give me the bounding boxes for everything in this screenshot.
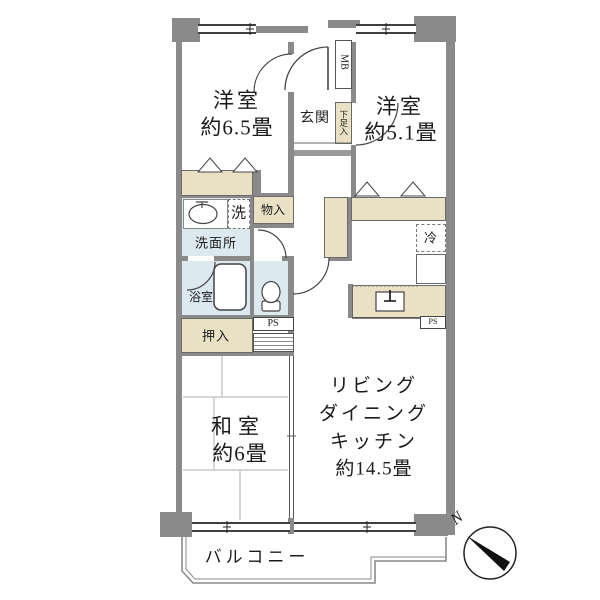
wall bbox=[252, 26, 308, 33]
floor-plan: 洋室 約6.5畳 洋室 約5.1畳 玄関 下足入 MB 洗 洗面所 物入 浴室 … bbox=[0, 0, 600, 600]
wall bbox=[288, 92, 294, 196]
closet-bedroom2-side bbox=[324, 197, 348, 258]
refrigerator-label: 冷 bbox=[424, 232, 438, 245]
bedroom1-name: 洋室 bbox=[213, 91, 261, 112]
entrance-step bbox=[294, 150, 351, 156]
oshiire-label: 押入 bbox=[202, 330, 230, 343]
living-door-arc bbox=[293, 258, 329, 294]
corridor-door-arc bbox=[258, 230, 286, 258]
ldk-line1: リビング bbox=[330, 377, 418, 396]
closet-bedroom2 bbox=[351, 197, 446, 221]
ldk-line3: キッチン bbox=[330, 433, 418, 452]
compass-needle bbox=[467, 536, 510, 571]
wall bbox=[446, 18, 455, 535]
japanese-room-name: 和室 bbox=[211, 417, 265, 438]
wall bbox=[214, 256, 254, 261]
sliding-door bbox=[287, 356, 296, 518]
toilet-floor bbox=[254, 261, 288, 316]
wall bbox=[288, 42, 294, 54]
wall bbox=[176, 40, 182, 518]
wall bbox=[176, 256, 188, 261]
pipe-space-label: PS bbox=[267, 319, 278, 329]
bedroom2-name: 洋室 bbox=[376, 97, 424, 118]
pipe-space-hatch bbox=[253, 333, 294, 352]
window-balcony-door bbox=[294, 522, 416, 532]
kitchen-counter bbox=[352, 285, 446, 318]
bath-label: 浴室 bbox=[189, 291, 213, 303]
counter-unit bbox=[416, 254, 446, 284]
window bbox=[198, 24, 256, 34]
wall bbox=[253, 170, 261, 196]
ldk-size: 約14.5畳 bbox=[335, 460, 412, 479]
bedroom2-size: 約5.1畳 bbox=[364, 123, 437, 144]
bedroom1-size: 約6.5畳 bbox=[200, 118, 273, 139]
wall-pillar bbox=[172, 18, 200, 42]
pipe-space-2-label: PS bbox=[429, 318, 438, 326]
meter-box-label: MB bbox=[339, 54, 349, 70]
closet-bedroom1 bbox=[181, 170, 253, 196]
entrance-label: 玄関 bbox=[300, 112, 330, 126]
hanger-icon bbox=[355, 182, 379, 196]
window bbox=[356, 24, 416, 34]
wall bbox=[250, 261, 254, 316]
vanity-counter bbox=[183, 199, 228, 229]
japanese-room-size: 約6畳 bbox=[212, 444, 268, 465]
storage-label: 物入 bbox=[261, 204, 285, 216]
shoe-cabinet-label: 下足入 bbox=[339, 110, 348, 136]
wall bbox=[351, 145, 356, 198]
washroom-label: 洗面所 bbox=[195, 237, 237, 250]
wall-pillar bbox=[414, 514, 448, 536]
hanger-icon bbox=[401, 182, 425, 196]
bedroom1-door-arc bbox=[254, 54, 292, 92]
washer-label: 洗 bbox=[231, 207, 247, 222]
balcony-label: バルコニー bbox=[205, 549, 310, 566]
ldk-line2: ダイニング bbox=[319, 405, 429, 424]
bath-floor bbox=[182, 261, 250, 316]
compass-circle bbox=[464, 527, 516, 579]
plan-linework bbox=[0, 0, 600, 600]
window-balcony-door bbox=[192, 522, 290, 532]
wall-pillar bbox=[160, 512, 192, 537]
